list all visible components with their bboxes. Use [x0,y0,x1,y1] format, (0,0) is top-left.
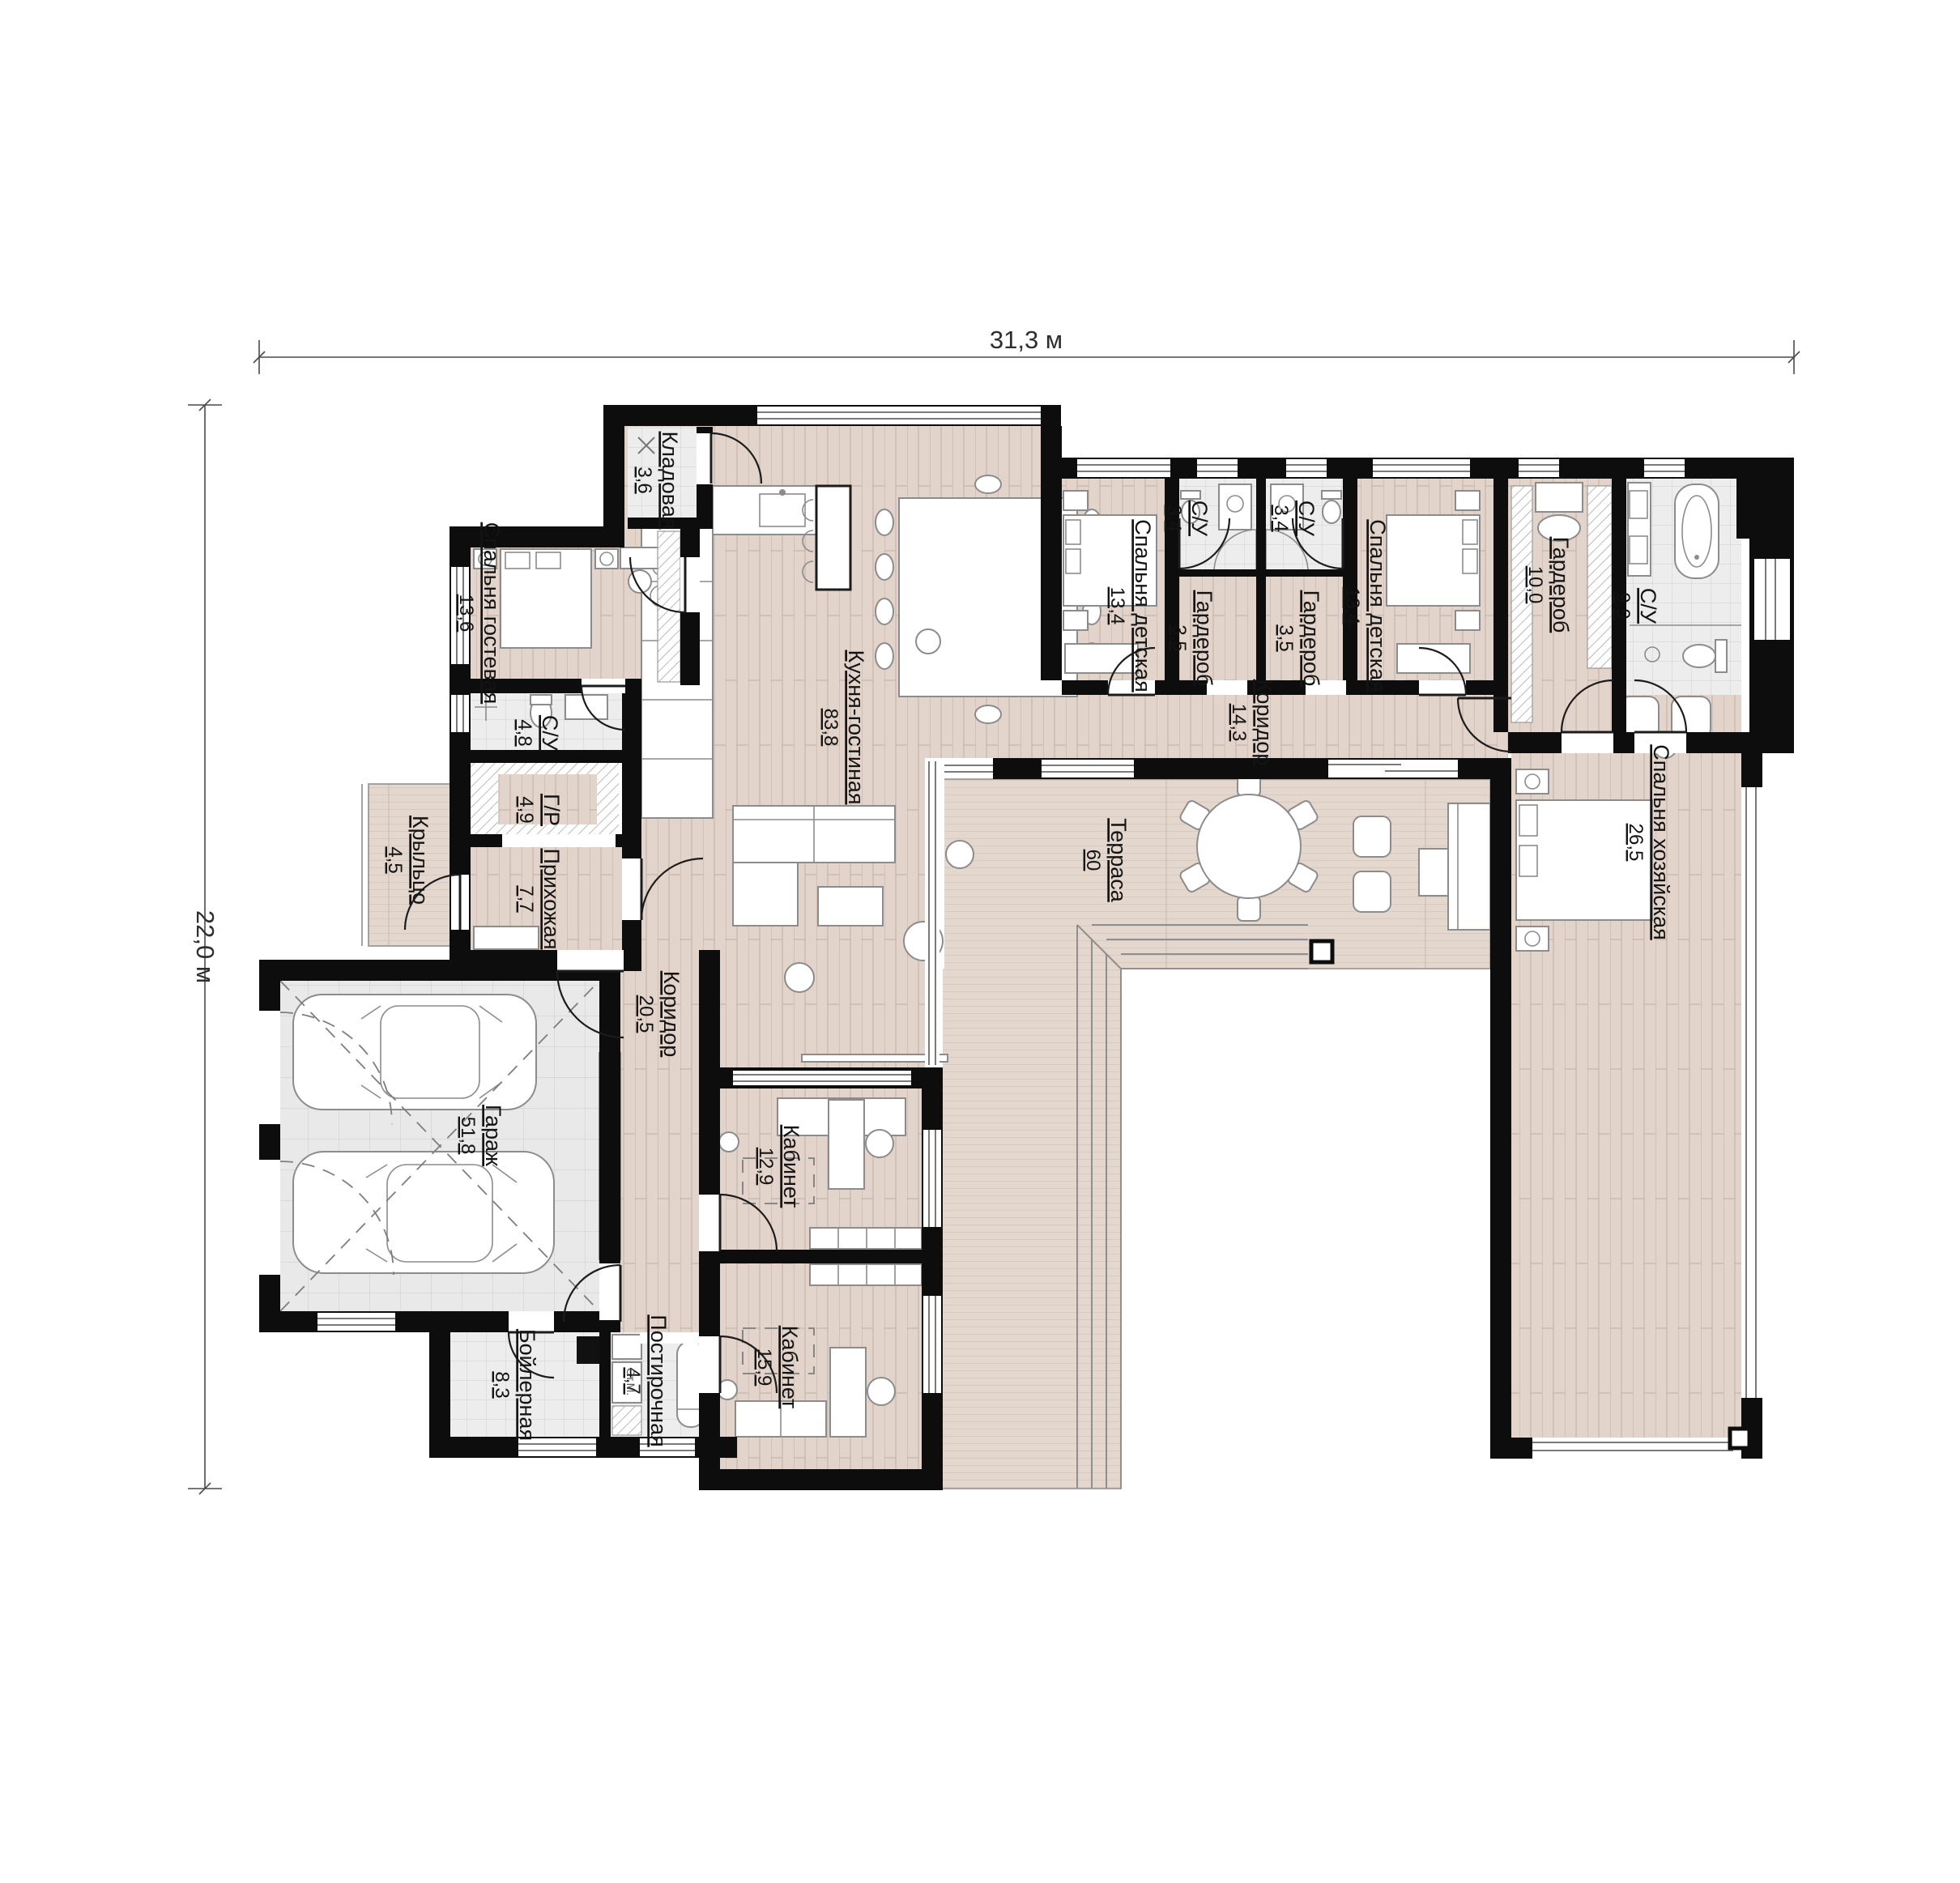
dimension-left: 22,0 м [188,399,222,1494]
svg-text:4,9: 4,9 [515,796,537,823]
side-table [946,841,974,868]
svg-text:Ст.М.: Ст.М. [624,1368,637,1395]
svg-text:С/У: С/У [538,715,562,752]
dresser [1065,644,1138,673]
drying-rack [612,1406,641,1435]
svg-text:Г/Р: Г/Р [539,794,564,826]
svg-text:12,9: 12,9 [755,1148,777,1186]
svg-text:20,5: 20,5 [635,995,657,1033]
svg-text:3,4: 3,4 [1163,505,1185,531]
svg-text:Гардероб: Гардероб [1299,590,1323,687]
svg-text:4,8: 4,8 [513,719,535,746]
armchair [1353,871,1391,912]
svg-text:7,7: 7,7 [515,885,537,912]
floor-lamp [719,1132,739,1152]
svg-text:83,8: 83,8 [820,709,842,747]
svg-text:Бойлерная: Бойлерная [515,1329,539,1441]
svg-text:10,0: 10,0 [1524,566,1546,604]
svg-text:С/У: С/У [1294,501,1319,537]
svg-text:13,4: 13,4 [1341,587,1363,625]
desk-chair [866,1130,893,1157]
svg-text:51,8: 51,8 [457,1117,479,1155]
vanity [1219,484,1251,530]
desk [829,1100,864,1189]
svg-text:9,9: 9,9 [1612,592,1634,619]
svg-text:22,0 м: 22,0 м [191,910,219,983]
svg-text:Коридор: Коридор [1252,679,1276,766]
toilet [1323,501,1340,523]
bench [1536,483,1583,512]
svg-text:31,3 м: 31,3 м [990,326,1063,354]
side-table [916,629,940,654]
svg-text:Кладовая: Кладовая [658,432,682,530]
svg-text:3,4: 3,4 [1270,505,1292,531]
desk-chair [867,1378,895,1405]
svg-text:Спальня хозяйская: Спальня хозяйская [1649,744,1673,940]
svg-text:Спальня детская: Спальня детская [1366,519,1390,692]
svg-text:13,6: 13,6 [455,594,477,633]
svg-text:3,5: 3,5 [1275,624,1297,651]
toilet [1683,645,1715,667]
hallway-bench [474,927,539,949]
svg-text:60: 60 [1082,850,1104,871]
svg-text:Гардероб: Гардероб [1549,537,1573,633]
svg-text:13,4: 13,4 [1106,587,1128,625]
corner-column [1730,1429,1749,1448]
car-1 [293,995,536,1110]
bathtub [1675,484,1719,578]
svg-text:Спальня гостевая: Спальня гостевая [479,522,504,705]
pouf [785,963,814,992]
svg-text:4,5: 4,5 [384,846,406,873]
bed-kids-2 [1387,491,1480,673]
svg-text:С/У: С/У [1187,501,1212,537]
svg-text:3,6: 3,6 [633,466,655,493]
svg-text:Кухня-гостиная: Кухня-гостиная [844,650,868,804]
washer-label: Ст.М. [624,1368,637,1395]
svg-text:С/У: С/У [1636,588,1660,624]
svg-text:Спальня детская: Спальня детская [1131,519,1155,692]
svg-text:Гараж: Гараж [481,1105,505,1166]
laundry-sink [612,1335,641,1359]
floor-plan-svg: Кладовая3,6 Спальня гостевая13,6 С/У4,8 … [0,0,1960,1883]
svg-text:14,3: 14,3 [1228,704,1250,742]
armchair [1353,816,1391,857]
svg-text:Кабинет: Кабинет [779,1125,803,1208]
svg-text:26,5: 26,5 [1625,824,1647,862]
svg-text:Постирочная: Постирочная [646,1314,671,1446]
sofa [1448,803,1490,930]
terrace-column [1311,941,1332,962]
car-2 [293,1152,554,1273]
svg-text:15,9: 15,9 [753,1348,775,1387]
svg-text:Кабинет: Кабинет [778,1326,802,1409]
svg-text:Коридор: Коридор [659,971,684,1058]
svg-text:3,5: 3,5 [1168,624,1190,651]
dimension-top: 31,3 м [254,326,1800,374]
svg-text:Гардероб: Гардероб [1192,590,1216,687]
svg-text:Крыльцо: Крыльцо [408,816,432,905]
svg-text:Прихожая: Прихожая [539,848,564,949]
svg-text:8,3: 8,3 [491,1371,513,1398]
desk [830,1348,866,1437]
svg-text:Терраса: Терраса [1106,818,1131,903]
